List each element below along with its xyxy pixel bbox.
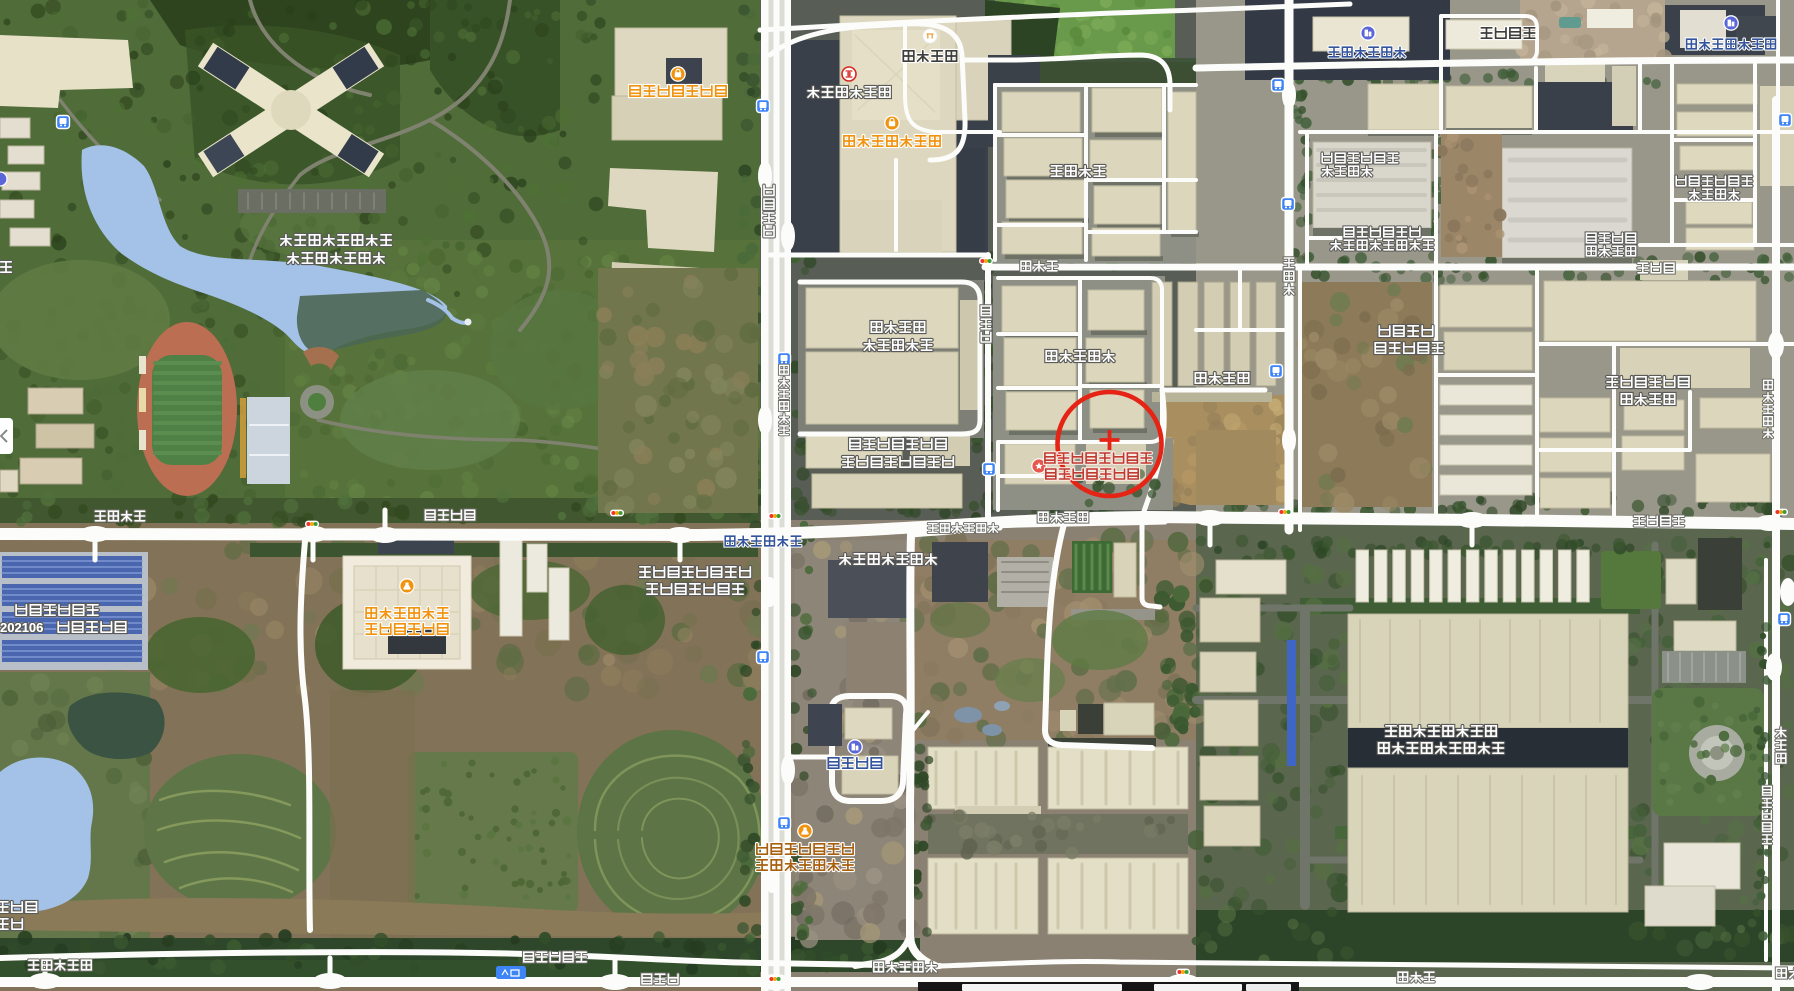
svg-text:202106: 202106: [0, 620, 43, 635]
